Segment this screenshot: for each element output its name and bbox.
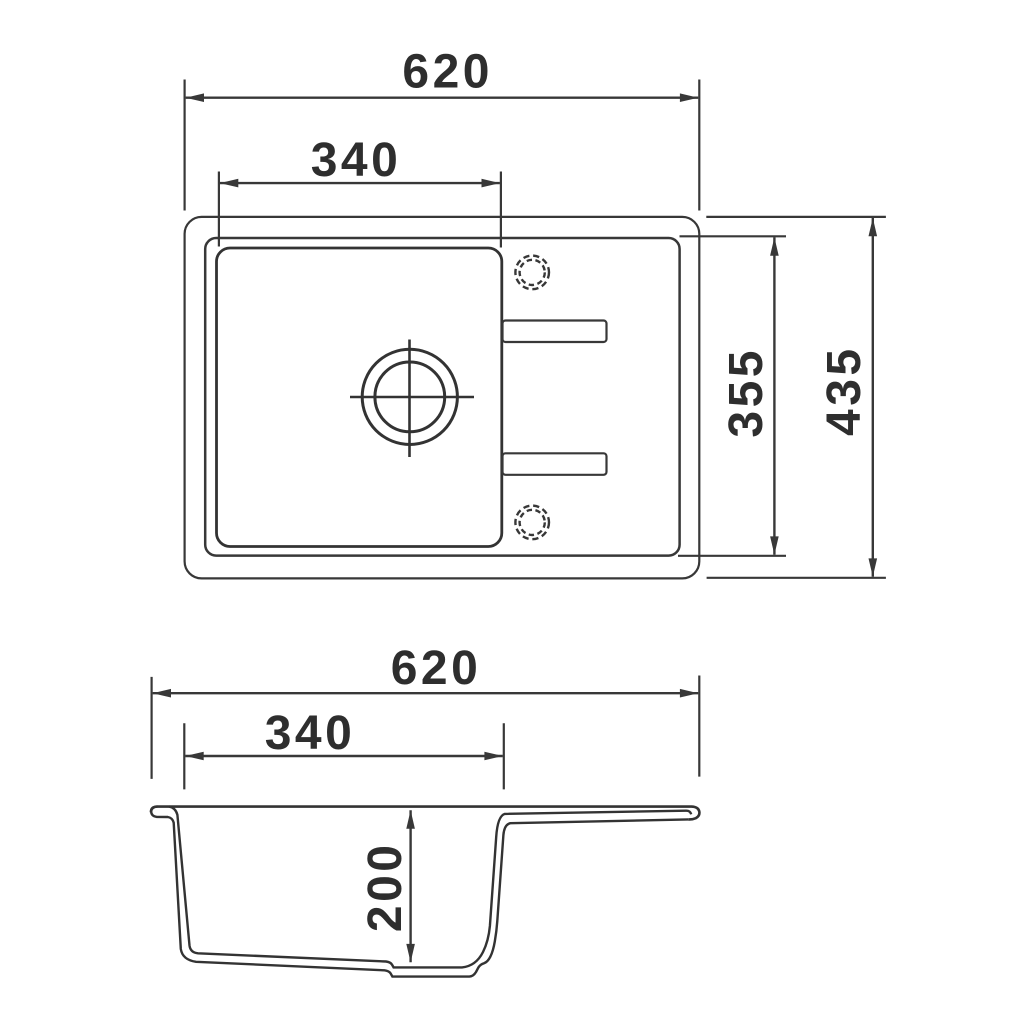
svg-text:355: 355 xyxy=(720,347,773,438)
svg-text:435: 435 xyxy=(818,345,871,436)
svg-text:200: 200 xyxy=(359,842,412,933)
svg-text:340: 340 xyxy=(311,134,402,187)
svg-text:620: 620 xyxy=(402,46,493,99)
svg-text:340: 340 xyxy=(265,707,356,760)
svg-text:620: 620 xyxy=(391,642,482,695)
